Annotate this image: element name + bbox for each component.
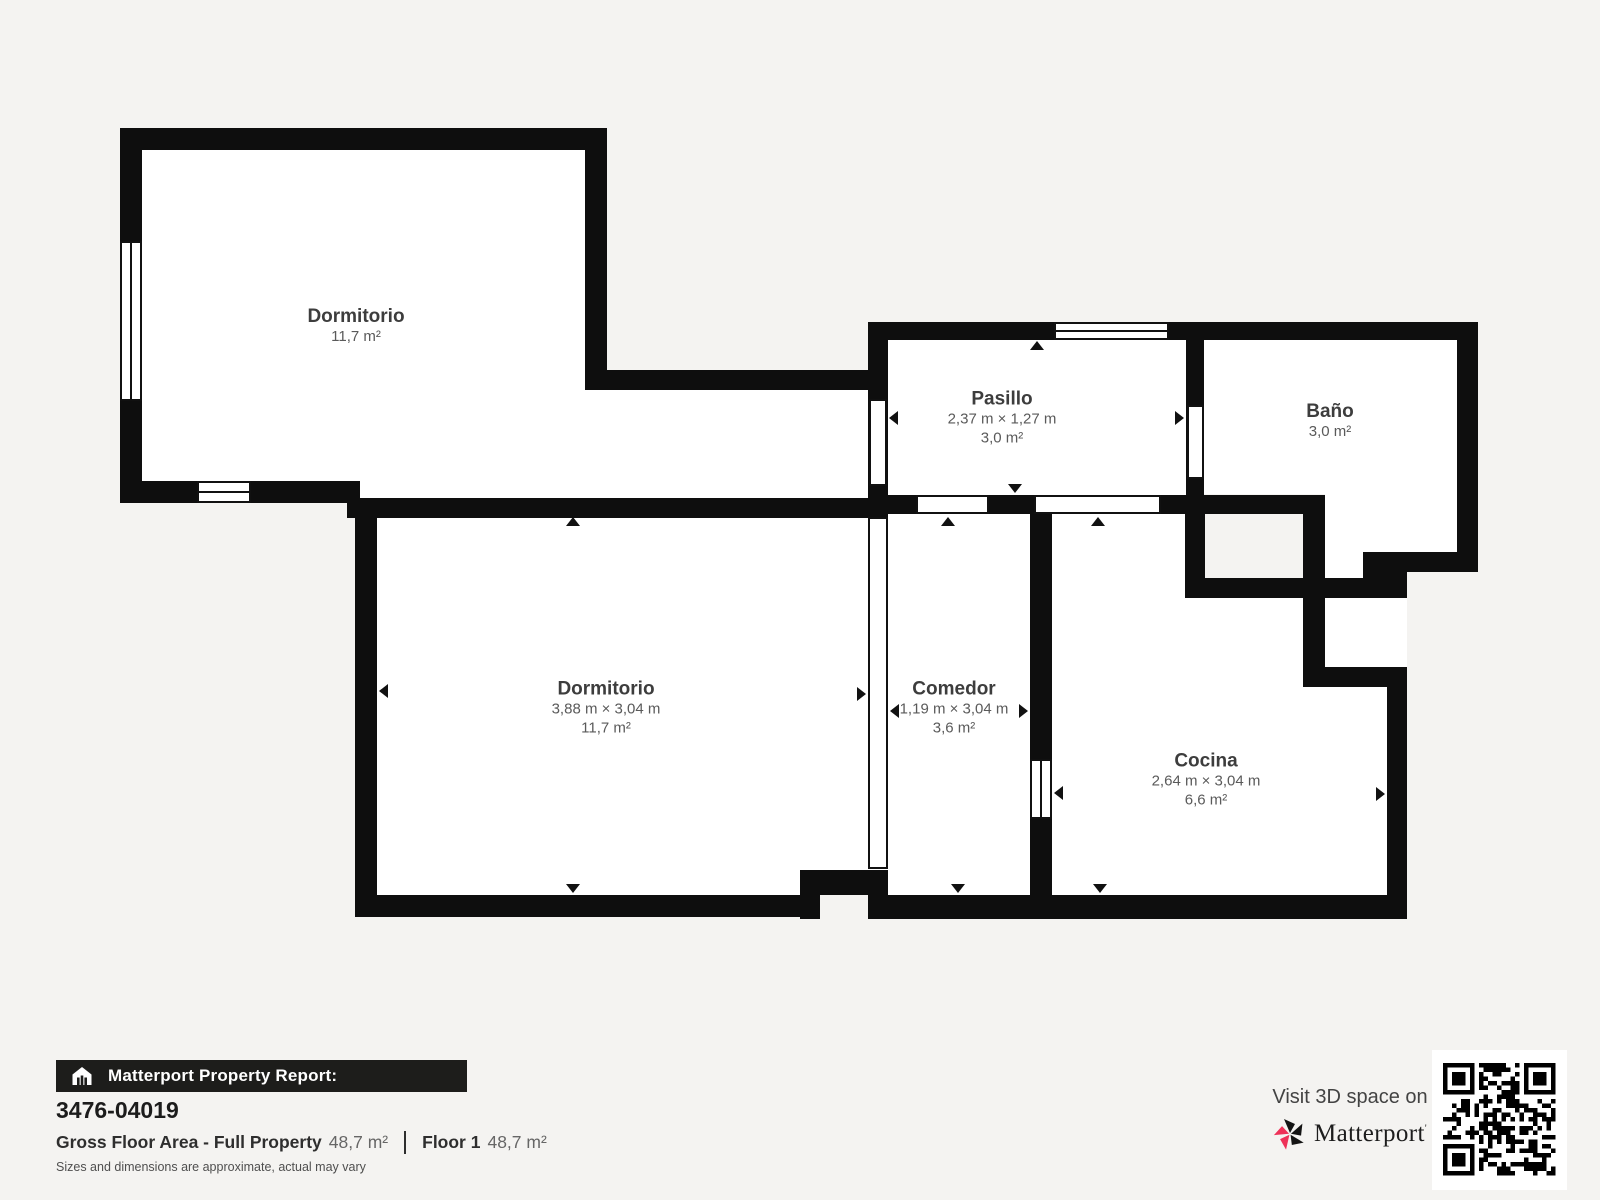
qr-code (1432, 1050, 1567, 1190)
matterport-brand: Matterport' (1250, 1117, 1450, 1151)
room-area: 11,7 m² (552, 719, 661, 738)
room-area: 6,6 m² (1152, 791, 1261, 810)
label-pasillo: Pasillo 2,37 m × 1,27 m 3,0 m² (948, 389, 1057, 448)
room-title: Comedor (900, 679, 1009, 700)
floor-plan (0, 0, 1600, 1030)
opening-pasillo-to-comedor (917, 496, 988, 513)
home-icon (70, 1065, 94, 1087)
opening-hall-to-pasillo (870, 400, 886, 485)
opening-pasillo-to-cocina (1035, 496, 1160, 513)
room-dims: 3,88 m × 3,04 m (552, 700, 661, 719)
label-dormitorio-2: Dormitorio 3,88 m × 3,04 m 11,7 m² (552, 679, 661, 738)
window-pasillo-top (1055, 323, 1168, 339)
room-dims: 2,64 m × 3,04 m (1152, 772, 1261, 791)
room-area: 3,0 m² (948, 429, 1057, 448)
opening-pasillo-to-bano (1188, 406, 1203, 478)
label-comedor: Comedor 1,19 m × 3,04 m 3,6 m² (900, 679, 1009, 738)
visit-3d-block: Visit 3D space on Matterport' (1250, 1086, 1450, 1151)
gross-floor-area-line: Gross Floor Area - Full Property 48,7 m²… (56, 1131, 547, 1154)
report-bar-label: Matterport Property Report: (108, 1066, 337, 1086)
floor-label: Floor 1 (422, 1132, 480, 1153)
courtyard-notch (1205, 514, 1303, 578)
label-bano: Baño 3,0 m² (1306, 401, 1354, 441)
qr-code-pattern (1432, 1050, 1567, 1190)
gross-area-value: 48,7 m² (329, 1132, 388, 1153)
matterport-wordmark: Matterport' (1314, 1120, 1427, 1148)
floor-duct-pocket (1325, 598, 1407, 667)
window-dormitorio1-bottom (198, 482, 250, 502)
exterior-pockets (1205, 514, 1303, 578)
room-title: Dormitorio (552, 679, 661, 700)
room-dims: 1,19 m × 3,04 m (900, 700, 1009, 719)
label-cocina: Cocina 2,64 m × 3,04 m 6,6 m² (1152, 751, 1261, 810)
window-comedor-cocina (1031, 760, 1051, 818)
room-area: 11,7 m² (307, 327, 404, 346)
room-title: Dormitorio (307, 306, 404, 327)
room-area: 3,6 m² (900, 719, 1009, 738)
floor-value: 48,7 m² (487, 1132, 546, 1153)
gross-area-label: Gross Floor Area - Full Property (56, 1132, 322, 1153)
visit-3d-label: Visit 3D space on (1250, 1086, 1450, 1109)
room-title: Baño (1306, 401, 1354, 422)
matterport-floor-plan-page: Dormitorio 11,7 m² Pasillo 2,37 m × 1,27… (0, 0, 1600, 1200)
room-dims: 2,37 m × 1,27 m (948, 410, 1057, 429)
matterport-logo-icon (1273, 1117, 1307, 1151)
label-dormitorio-1: Dormitorio 11,7 m² (307, 306, 404, 346)
room-title: Cocina (1152, 751, 1261, 772)
window-dormitorio1-left (121, 242, 141, 400)
floor-hall-strip (585, 390, 888, 500)
pinwheel (1274, 1119, 1306, 1150)
report-header-bar: Matterport Property Report: (56, 1060, 467, 1092)
divider-dormitorio2-comedor (869, 518, 887, 868)
report-id: 3476-04019 (56, 1097, 179, 1124)
disclaimer-text: Sizes and dimensions are approximate, ac… (56, 1160, 366, 1174)
divider (404, 1131, 406, 1154)
room-title: Pasillo (948, 389, 1057, 410)
room-area: 3,0 m² (1306, 422, 1354, 441)
